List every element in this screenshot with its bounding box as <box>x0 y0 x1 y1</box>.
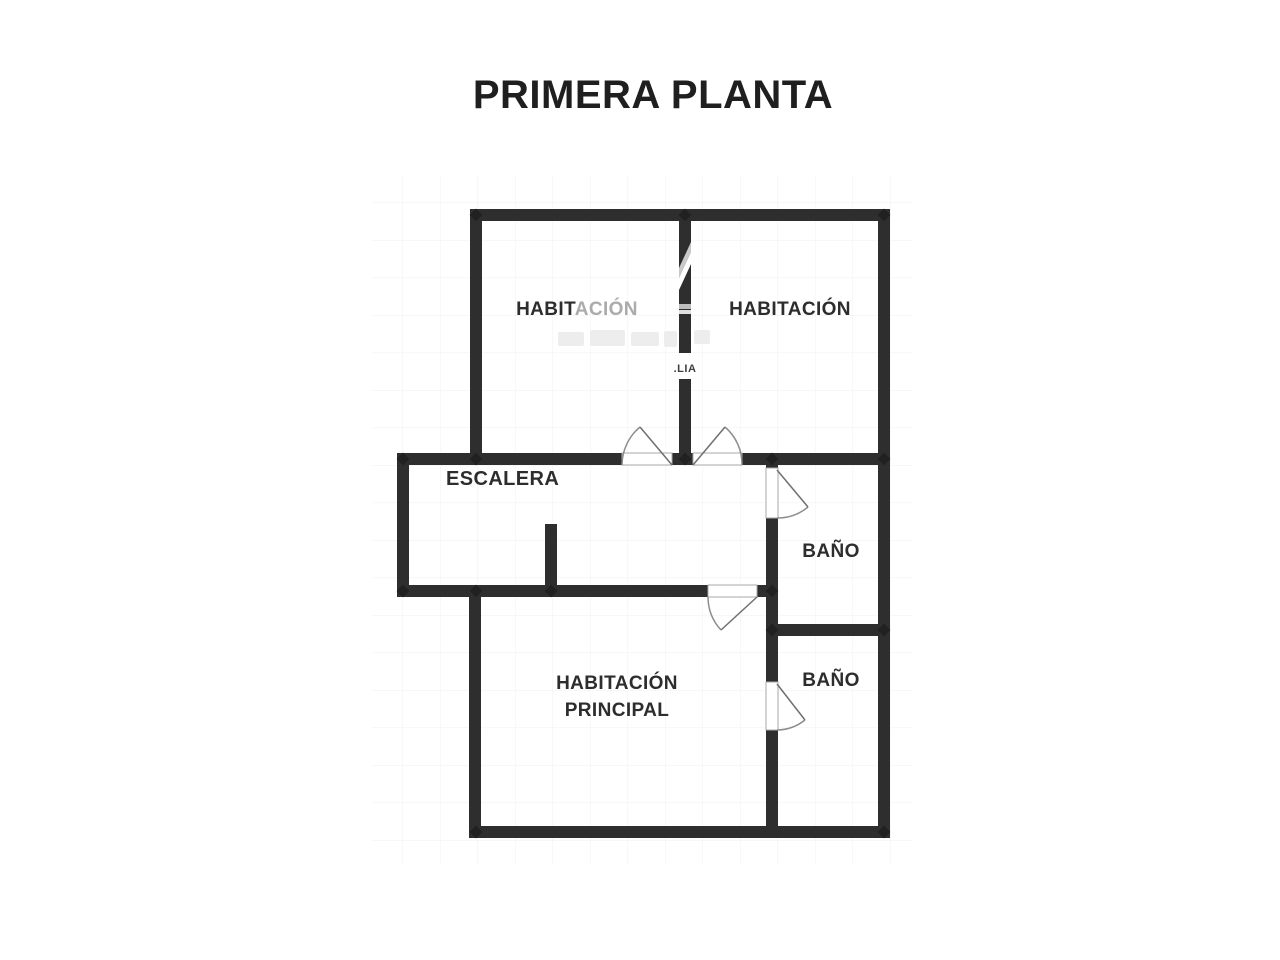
door-opening-habitacion-principal <box>708 585 757 597</box>
door-opening-habitacion-1 <box>622 453 672 465</box>
floor-plan-canvas: PRIMERA PLANTA <box>0 0 1280 960</box>
wall-bath-separator <box>766 624 890 636</box>
watermark-ghost-shape <box>664 331 677 347</box>
door-opening-bano-2 <box>766 682 778 730</box>
room-label-habitacion-1-faded: ACIÓN <box>575 298 638 320</box>
watermark-ghost-shape <box>694 330 710 344</box>
wall-left-upper <box>470 209 482 465</box>
door-opening-habitacion-2 <box>693 453 742 465</box>
watermark-ghost-shape <box>558 332 584 346</box>
wall-bath-column-lower <box>766 730 778 838</box>
room-label-bano-1: BAÑO <box>802 540 860 562</box>
room-label-habitacion-2: HABITACIÓN <box>729 298 851 320</box>
watermark-mark-1 <box>679 304 691 309</box>
watermark-ghost-shape <box>590 330 625 346</box>
wall-corridor-top-left <box>397 453 622 465</box>
room-label-bano-2: BAÑO <box>802 669 860 691</box>
door-opening-bano-1 <box>766 468 778 518</box>
wall-corridor-top-right <box>742 453 890 465</box>
wall-bath-column-middle <box>766 518 778 682</box>
watermark-mark-2 <box>679 310 691 314</box>
watermark-ghost-shape <box>631 332 659 346</box>
watermark-text-fragment: .LIA <box>674 363 697 375</box>
room-label-habitacion-principal-line1: HABITACIÓN <box>556 672 678 694</box>
wall-left-lower <box>469 585 481 838</box>
page-title: PRIMERA PLANTA <box>473 73 833 117</box>
wall-stair-stub <box>545 524 557 585</box>
wall-right <box>878 209 890 838</box>
room-label-habitacion-1-dark: HABIT <box>516 299 576 320</box>
wall-bottom <box>469 826 890 838</box>
room-label-escalera: ESCALERA <box>446 468 559 490</box>
room-label-habitacion-1: HABITACIÓN <box>516 298 638 320</box>
floor-plan-page: PRIMERA PLANTA <box>0 0 1280 960</box>
room-label-habitacion-principal-line2: PRINCIPAL <box>565 700 670 721</box>
grid-background <box>372 175 912 865</box>
wall-corridor-left <box>397 453 409 597</box>
